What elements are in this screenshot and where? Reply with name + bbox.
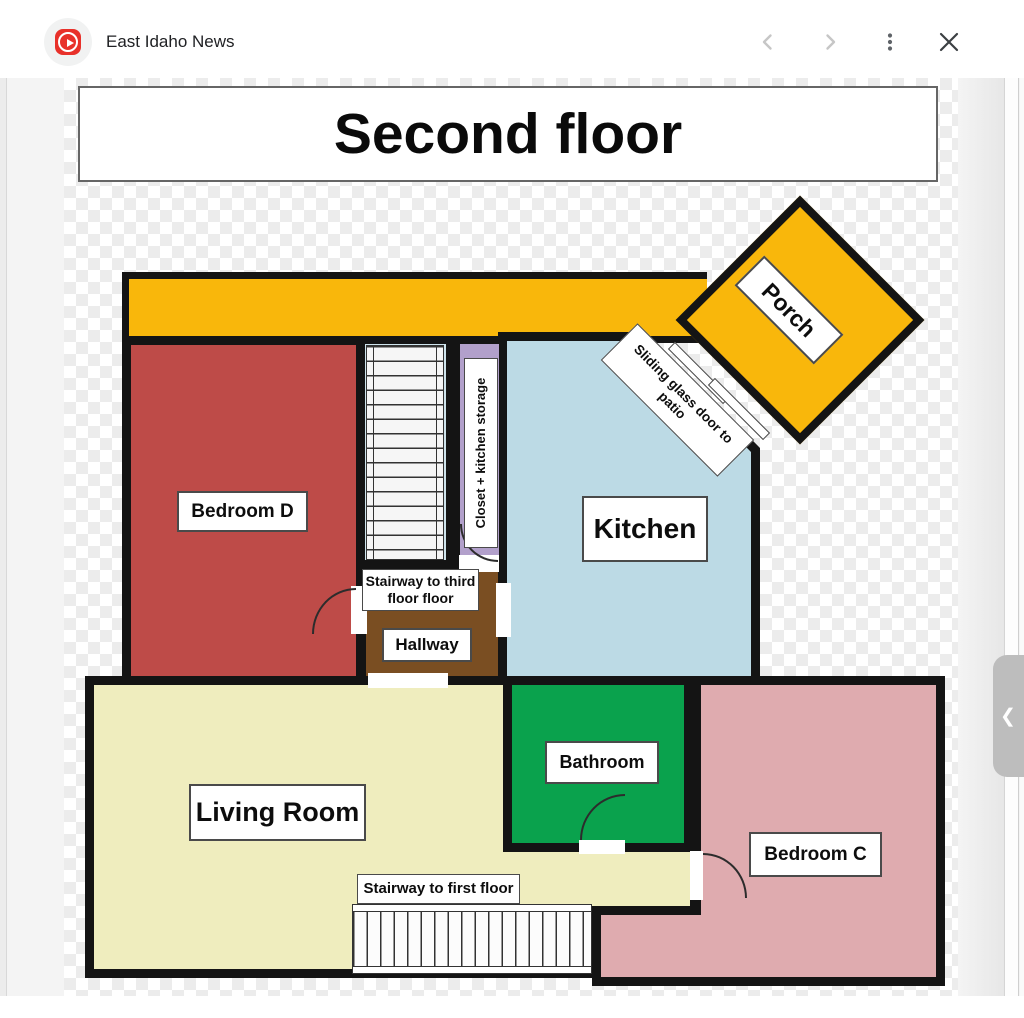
door-gap-living-room	[368, 673, 448, 688]
label-kitchen: Kitchen	[582, 496, 708, 562]
stairs-rail	[353, 966, 591, 973]
close-icon	[936, 29, 962, 55]
door-gap-kitchen	[496, 583, 511, 637]
right-margin	[958, 78, 1004, 996]
door-gap-bedroom-c	[690, 851, 703, 900]
right-page-edge	[1020, 78, 1024, 996]
stairs-rail	[436, 346, 437, 559]
more-options-button[interactable]	[876, 28, 904, 56]
publisher-logo[interactable]	[44, 18, 92, 66]
prev-page-button[interactable]	[754, 28, 782, 56]
label-bedroom-c: Bedroom C	[749, 832, 882, 877]
viewer-header: East Idaho News	[0, 0, 1024, 78]
previous-story-edge	[0, 78, 7, 998]
chevron-right-icon	[818, 30, 842, 54]
next-page-button[interactable]	[816, 28, 844, 56]
chevron-left-icon: ❮	[1000, 705, 1016, 728]
next-story-edge	[1004, 78, 1019, 996]
floorplan-title: Second floor	[78, 86, 938, 182]
label-hallway: Hallway	[382, 628, 472, 662]
label-bathroom: Bathroom	[545, 741, 659, 784]
stairs-rail	[353, 905, 591, 912]
stairs-treads	[353, 912, 591, 966]
close-button[interactable]	[935, 28, 963, 56]
label-bedroom-d: Bedroom D	[177, 491, 308, 532]
chevron-left-icon	[756, 30, 780, 54]
play-icon-ring	[58, 32, 78, 52]
label-closet: Closet + kitchen storage	[464, 358, 498, 548]
play-icon-triangle	[67, 39, 74, 47]
door-gap-bathroom	[579, 840, 625, 854]
stairs-to-third-floor	[366, 345, 444, 560]
label-stairway-first: Stairway to first floor	[357, 874, 520, 904]
stairs-rail	[373, 346, 374, 559]
story-nav-handle[interactable]: ❮	[993, 655, 1024, 777]
label-stairway-third: Stairway to third floor floor	[362, 569, 479, 611]
publisher-name: East Idaho News	[106, 32, 235, 52]
play-icon	[55, 29, 81, 55]
kebab-menu-icon	[878, 30, 902, 54]
stairs-to-first-floor	[352, 904, 592, 974]
amp-story-viewer: Second floor Porch Bedroom D Closet + ki…	[0, 0, 1024, 1018]
label-living-room: Living Room	[189, 784, 366, 841]
bottom-margin	[0, 996, 1024, 1018]
